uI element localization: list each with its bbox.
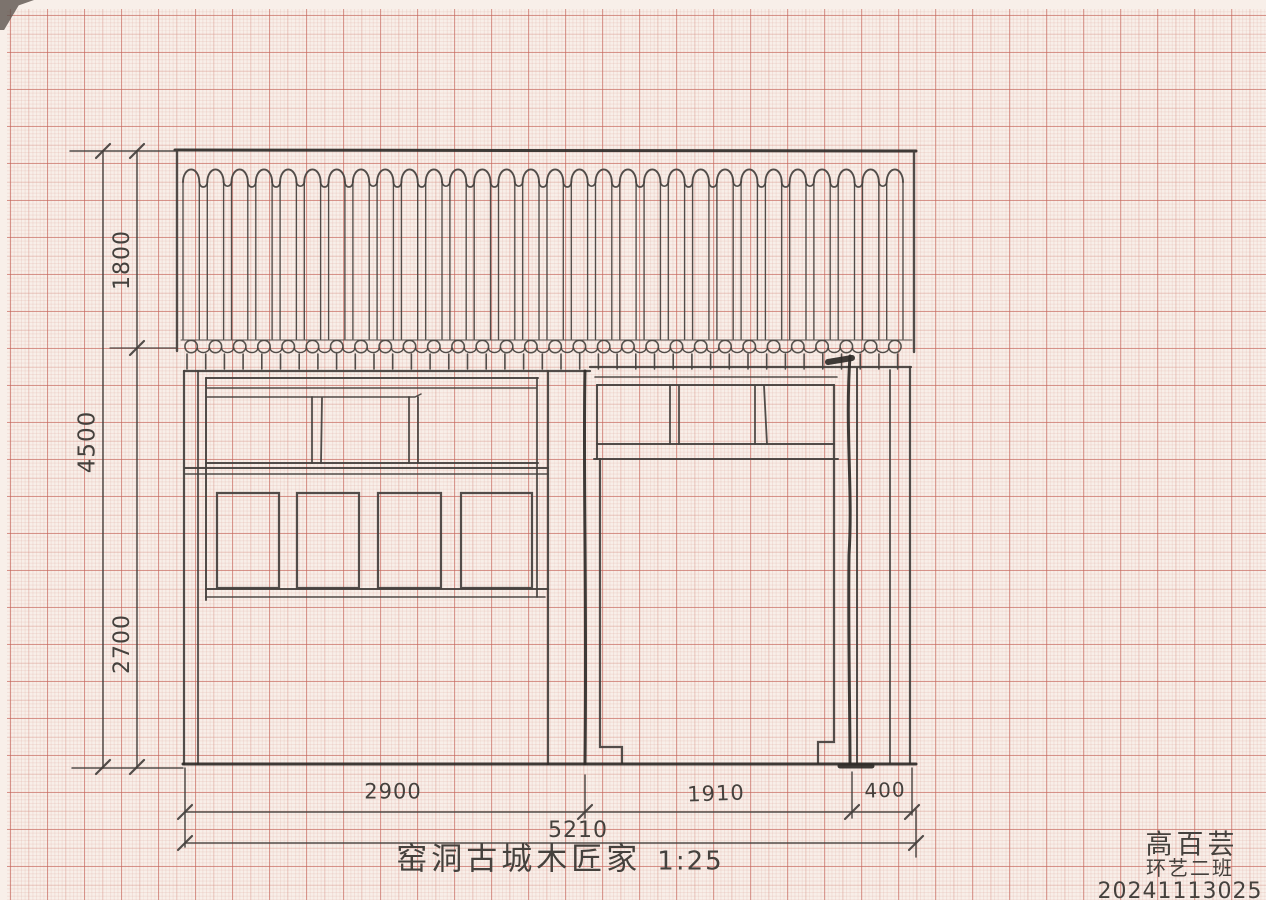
drawing-sheet: 1800 4500 2700 2900 1910 400 5210 窑洞古城木匠… [0, 0, 1266, 900]
signature-name: 高百芸 [1146, 832, 1239, 859]
dim-label-lower-wall-height: 2700 [112, 614, 134, 674]
title-block: 窑洞古城木匠家 1:25 [396, 845, 723, 876]
dim-label-overall-width: 5210 [548, 820, 608, 842]
signature-student-id: 20241113025 [1098, 881, 1263, 900]
dim-label-right-bay: 1910 [687, 783, 745, 806]
drawing-title: 窑洞古城木匠家 [396, 845, 641, 876]
signature-class: 环艺二班 [1146, 858, 1234, 878]
drawing-scale: 1:25 [657, 849, 723, 875]
dim-label-side-bay: 400 [864, 779, 906, 800]
dim-label-roof-height: 1800 [112, 230, 134, 290]
elevation-drawing [0, 0, 1266, 900]
dim-label-left-bay: 2900 [364, 782, 421, 803]
dim-label-overall-height: 4500 [77, 411, 100, 474]
